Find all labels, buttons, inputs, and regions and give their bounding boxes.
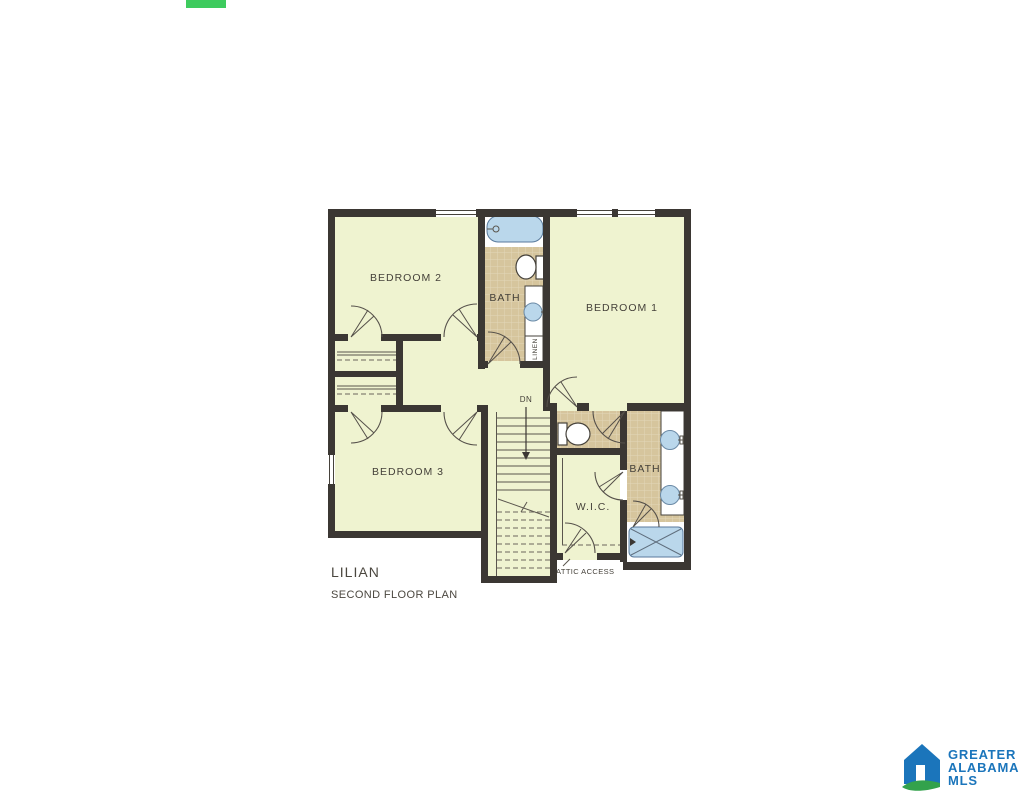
label-bath-lower: BATH (629, 463, 660, 475)
plan-title: LILIAN (331, 564, 380, 580)
label-bedroom1: BEDROOM 1 (586, 302, 658, 314)
label-bedroom2: BEDROOM 2 (370, 272, 442, 284)
wall-wic-bottom-a (550, 553, 563, 560)
wall-stair-bottom (481, 576, 557, 583)
wall-bed3-top-a (328, 405, 348, 412)
wall-bath-upper-bottom-a (478, 361, 488, 368)
wall-closet-divider (335, 371, 403, 377)
wall-bedroom3-bottom (328, 531, 488, 538)
wall-toilet-bottom (550, 448, 627, 455)
window-bedroom2 (433, 209, 479, 217)
wall-bath-upper-right (543, 209, 550, 369)
logo-text-line3: MLS (948, 773, 978, 788)
sink-lower-2 (661, 486, 680, 505)
accent-bar (186, 0, 226, 8)
wall-wic-bath-b (620, 500, 627, 562)
title-block: LILIAN SECOND FLOOR PLAN (331, 564, 458, 601)
sink-lower-1 (661, 431, 680, 450)
wall-bed2-bottom-b (381, 334, 441, 341)
mls-logo: GREATER ALABAMA MLS (902, 744, 1019, 791)
toilet-bowl-lower (566, 423, 590, 445)
wall-outer-right (684, 209, 691, 570)
label-linen: LINEN (532, 338, 539, 360)
toilet-bowl-upper (516, 255, 536, 279)
wall-wic-bath-a (620, 455, 627, 470)
wall-bed2-bottom-a (328, 334, 348, 341)
plan-subtitle: SECOND FLOOR PLAN (331, 589, 458, 601)
label-attic-access: ATTIC ACCESS (556, 567, 614, 576)
label-bath-upper: BATH (489, 292, 520, 304)
wall-outer-left (328, 209, 335, 538)
attic-leader-line (563, 559, 570, 566)
label-bedroom3: BEDROOM 3 (372, 466, 444, 478)
wall-bed1-bottom-b (577, 403, 589, 411)
wall-stair-left (481, 405, 488, 583)
wall-outer-bottom-right (623, 562, 691, 570)
window-bedroom1 (574, 209, 658, 217)
wall-bed3-top-b (381, 405, 441, 412)
wall-bed1-bottom-c (627, 403, 691, 411)
label-wic: W.I.C. (576, 501, 611, 513)
floor-plan-canvas: BEDROOM 2 BEDROOM 1 BEDROOM 3 BATH BATH … (0, 0, 1024, 791)
room-stairwell (488, 405, 550, 583)
page: BEDROOM 2 BEDROOM 1 BEDROOM 3 BATH BATH … (0, 0, 1024, 791)
bathtub (487, 216, 543, 242)
wall-bath-upper-left (478, 209, 485, 369)
sink-upper (524, 303, 542, 321)
wall-wic-bottom-b (597, 553, 627, 560)
wall-bed1-bottom-a (543, 403, 547, 411)
label-stairs-down: DN (520, 395, 533, 404)
window-bedroom3 (328, 452, 335, 487)
